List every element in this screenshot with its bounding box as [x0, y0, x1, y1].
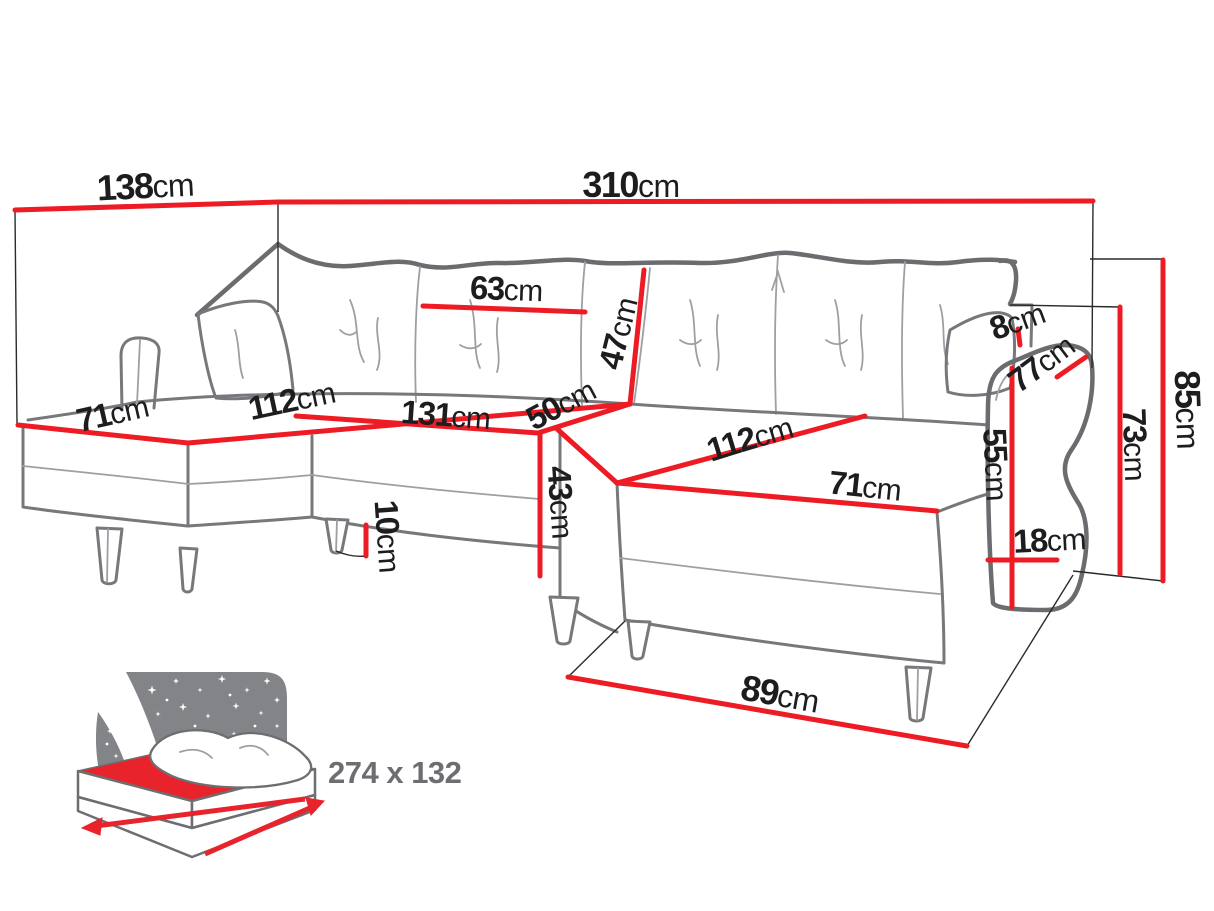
middle-front-bottom	[312, 517, 560, 548]
floor-left-edge	[568, 621, 625, 677]
dim-label-55: 55cm	[976, 427, 1017, 502]
pillow-seam	[772, 255, 784, 414]
dim-label-10: 10cm	[367, 499, 409, 574]
pillow-wrinkles	[680, 300, 719, 370]
dim-label-71-left: 71cm	[73, 387, 152, 439]
pillow-seam	[902, 262, 905, 418]
pillow-wrinkles	[826, 300, 863, 370]
sofa-dimension-diagram: 138cm 310cm 63cm 47cm 50cm 131cm 112cm 7…	[0, 0, 1214, 911]
dim-label-131: 131cm	[400, 393, 492, 436]
sofa-leg-line	[917, 668, 918, 720]
dim-label-73: 73cm	[1116, 408, 1156, 482]
sleeping-function-icon: 274 x 132	[78, 672, 461, 857]
wall-left-edge	[15, 210, 17, 424]
sofa-leg	[628, 621, 650, 659]
dim-label-85: 85cm	[1167, 370, 1211, 450]
small-pillow-left-wrinkle	[235, 330, 243, 378]
ottoman-right-edge	[937, 512, 944, 663]
dim-label-310: 310cm	[582, 164, 679, 205]
dim-label-63: 63cm	[469, 269, 543, 309]
floor-right-edge	[967, 575, 1073, 746]
pillow-wrinkles	[340, 300, 380, 370]
dim-label-112-right: 112cm	[702, 407, 797, 468]
diagram-canvas: 138cm 310cm 63cm 47cm 50cm 131cm 112cm 7…	[0, 0, 1214, 911]
ottoman-left-corner-edge	[617, 483, 625, 620]
sofa-leg-line	[336, 520, 337, 552]
sofa-leg	[550, 597, 578, 644]
sofa-leg	[180, 548, 197, 592]
dim-label-89: 89cm	[738, 667, 823, 721]
ottoman-front-bottom	[625, 620, 944, 663]
left-chaise-seam	[23, 466, 312, 484]
sofa-leg-line	[107, 529, 108, 582]
dim-label-43: 43cm	[540, 465, 582, 540]
dim-label-71-right: 71cm	[827, 463, 903, 507]
ottoman-front-seam	[620, 558, 940, 594]
backrest-right-end	[1000, 260, 1016, 304]
sofa-leg	[97, 528, 122, 584]
dim-label-138: 138cm	[96, 163, 195, 209]
dim-label-18: 18cm	[1012, 519, 1087, 560]
middle-front-seam	[312, 475, 539, 499]
wall-right-edge	[1092, 202, 1093, 368]
dim-label-8: 8cm	[984, 293, 1049, 347]
pillow-seam	[415, 267, 420, 402]
sleeping-area-label: 274 x 132	[328, 755, 461, 790]
